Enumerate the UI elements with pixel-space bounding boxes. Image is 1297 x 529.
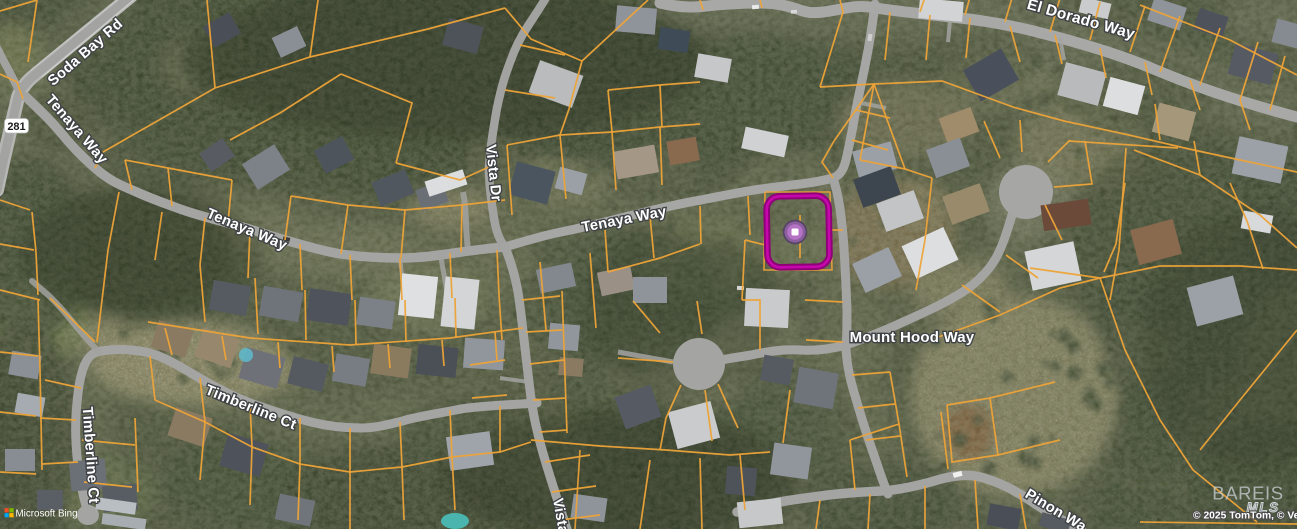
svg-text:281: 281: [7, 121, 25, 133]
svg-text:Microsoft Bing: Microsoft Bing: [16, 509, 78, 520]
svg-text:© 2025 TomTom, © Vexcel: © 2025 TomTom, © Vexcel: [1193, 511, 1297, 522]
svg-text:Mount Hood Way: Mount Hood Way: [850, 329, 975, 346]
